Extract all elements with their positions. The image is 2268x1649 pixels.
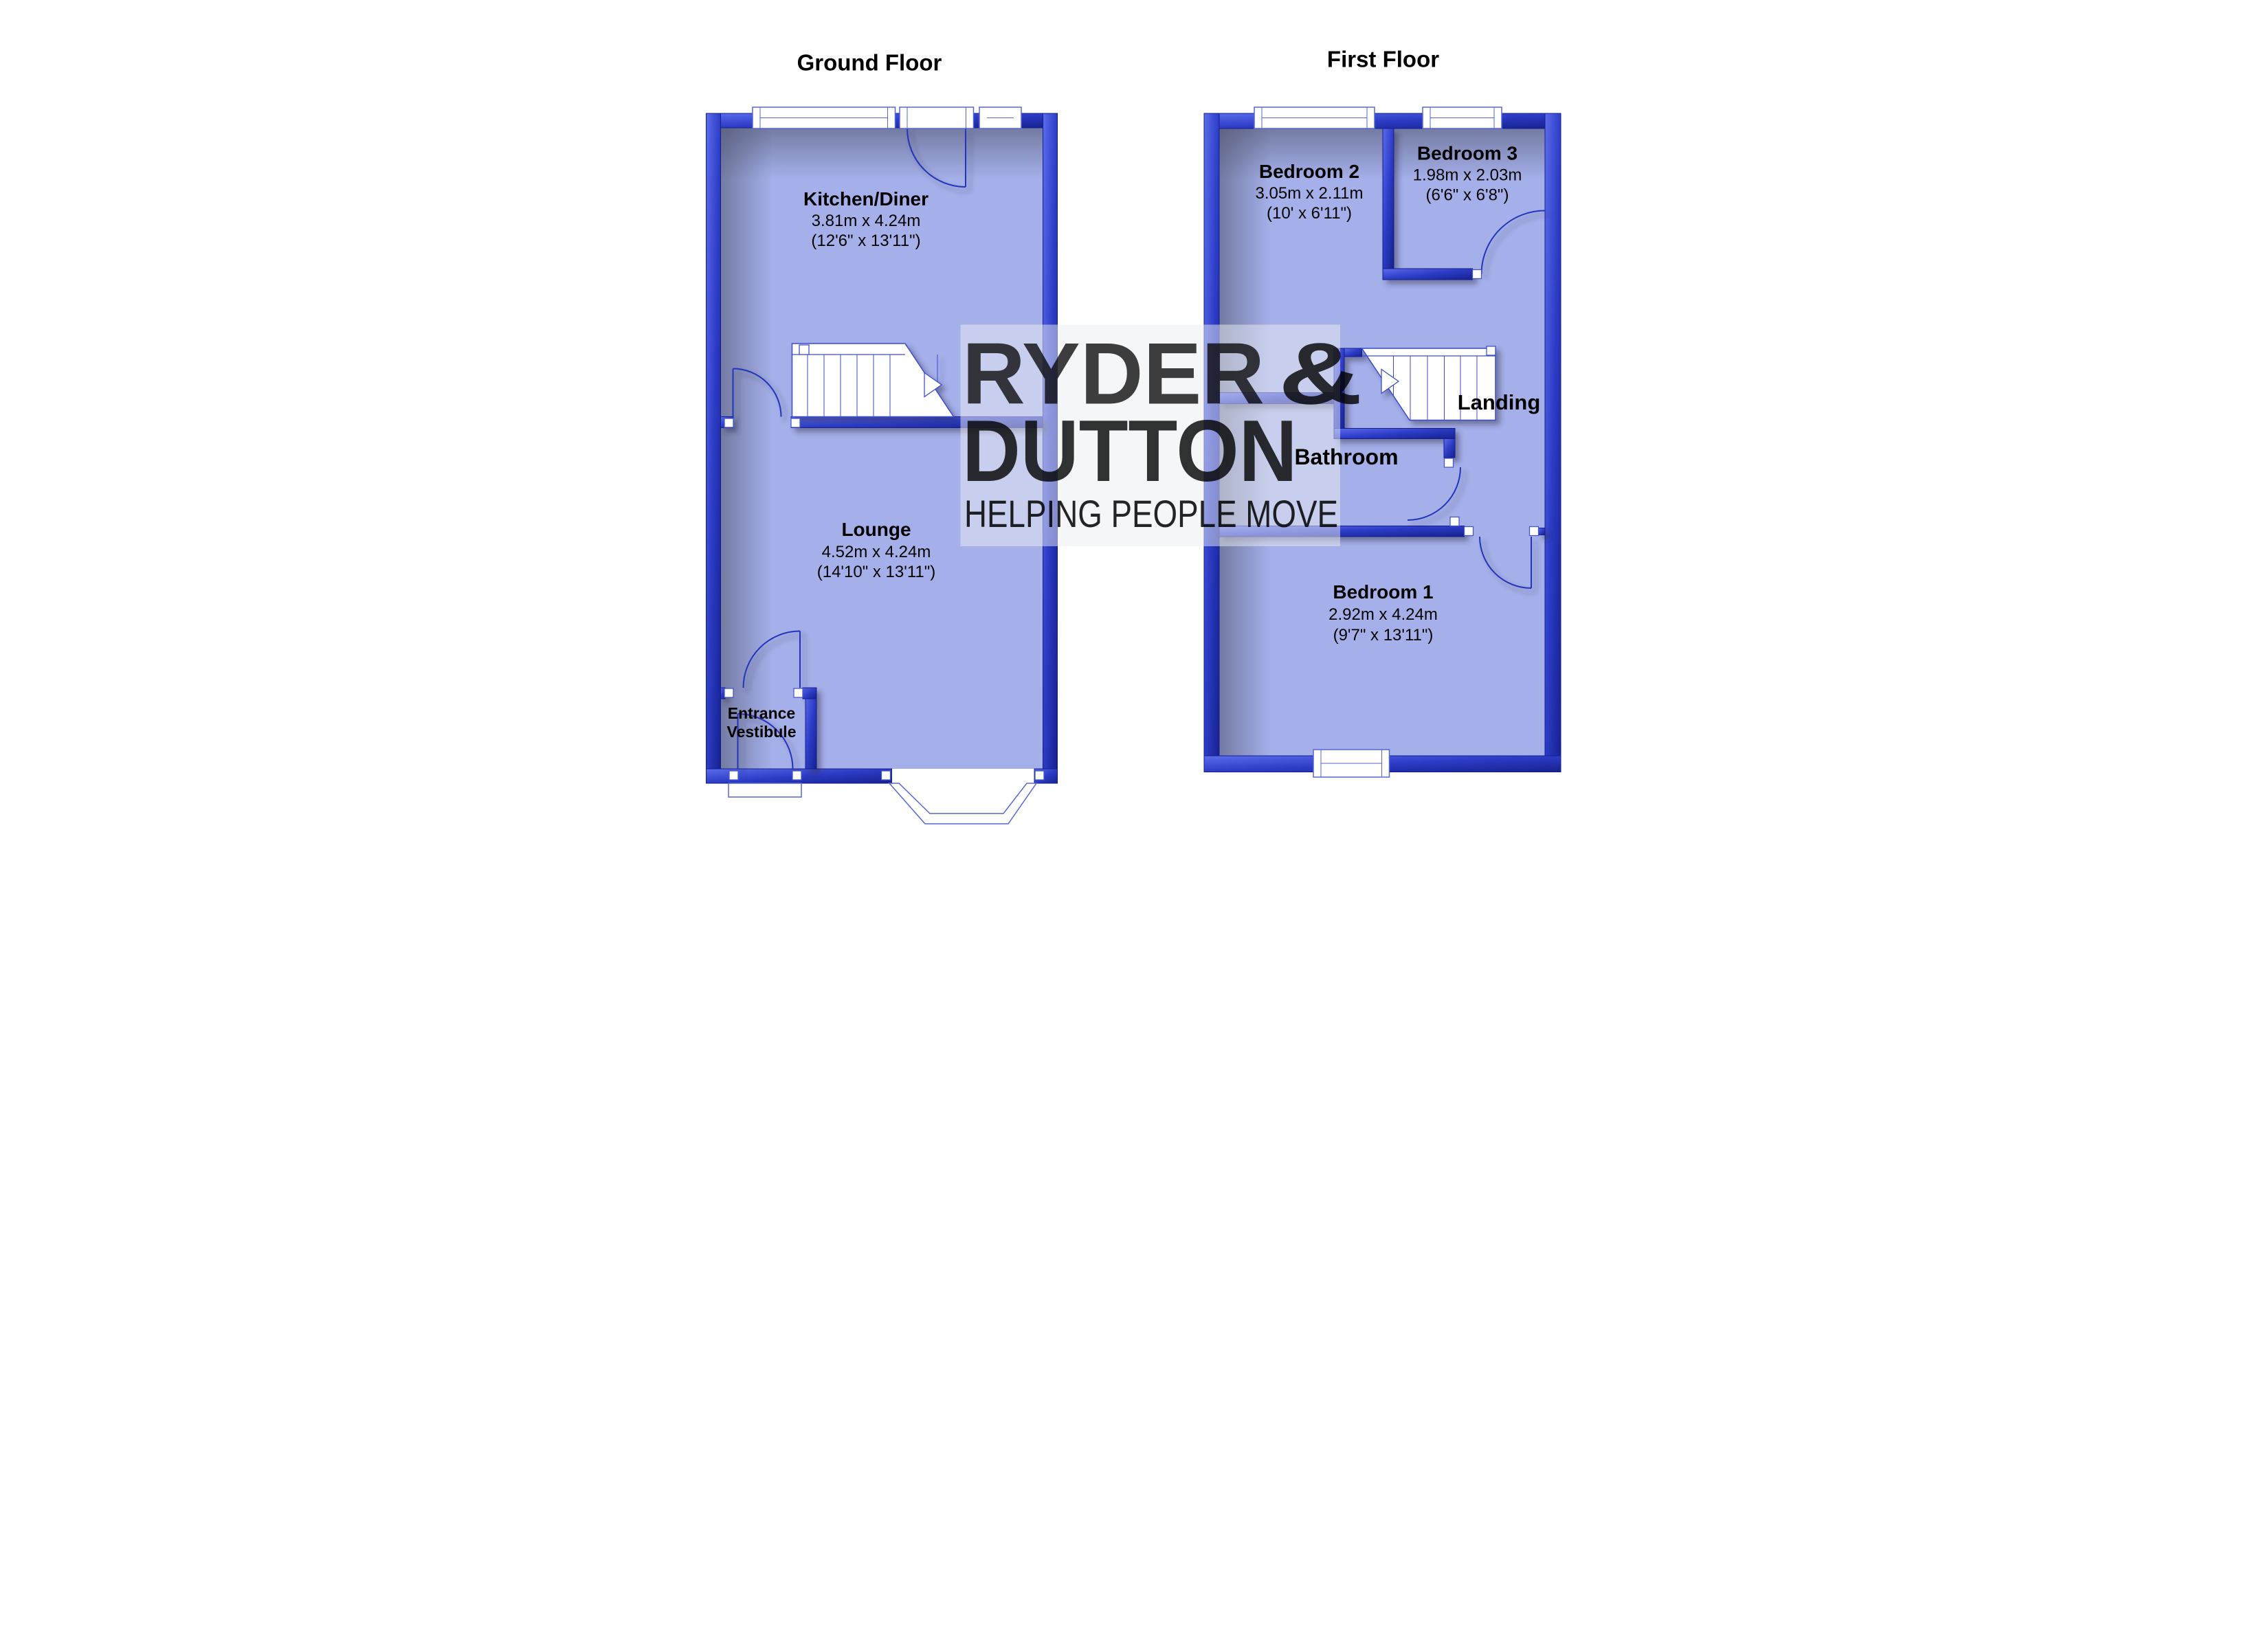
ground-shadow-left xyxy=(721,128,772,769)
watermark-tagline: HELPING PEOPLE MOVE xyxy=(964,492,1338,535)
wall-cap xyxy=(1473,270,1482,279)
wall-cap xyxy=(729,771,738,780)
wall xyxy=(707,113,721,783)
floorplan-canvas: RYDER & DUTTON HELPING PEOPLE MOVE Groun… xyxy=(567,0,1701,824)
bedroom2-imperial: (10' x 6'11") xyxy=(1267,204,1352,223)
vestibule-label-line1: Entrance xyxy=(728,704,795,722)
floorplan-page: RYDER & DUTTON HELPING PEOPLE MOVE Groun… xyxy=(567,0,1701,824)
bedroom1-metric: 2.92m x 4.24m xyxy=(1328,605,1438,624)
wall xyxy=(803,688,816,699)
kitchen-diner-imperial: (12'6" x 13'11") xyxy=(811,232,920,250)
front-door-threshold xyxy=(729,783,801,797)
lounge-metric: 4.52m x 4.24m xyxy=(822,543,931,561)
bedroom2-label: Bedroom 2 xyxy=(1259,161,1359,182)
wall-cap xyxy=(724,418,733,427)
first-floor-title: First Floor xyxy=(1327,47,1439,72)
wall-bathroom-jamb xyxy=(1444,439,1455,458)
kitchen-diner-metric: 3.81m x 4.24m xyxy=(812,212,921,230)
lounge-label: Lounge xyxy=(841,519,911,540)
bathroom-label: Bathroom xyxy=(1294,445,1398,469)
vestibule-label-line2: Vestibule xyxy=(727,723,797,741)
wall-vestibule xyxy=(805,688,816,769)
kitchen-diner-label: Kitchen/Diner xyxy=(803,188,929,210)
stairs-newel xyxy=(799,345,809,355)
wall xyxy=(1545,113,1561,772)
bedroom3-metric: 1.98m x 2.03m xyxy=(1413,166,1522,185)
wall-cap xyxy=(1445,458,1454,467)
wall-stairwell-bottom xyxy=(1334,429,1455,439)
wall-cap xyxy=(1035,771,1044,780)
wall-cap xyxy=(1530,527,1539,536)
landing-label: Landing xyxy=(1458,390,1541,414)
wall-cap xyxy=(724,688,733,697)
stairs-newel xyxy=(1487,346,1496,355)
bedroom3-imperial: (6'6" x 6'8") xyxy=(1426,186,1509,205)
wall-cap xyxy=(794,688,803,697)
lounge-imperial: (14'10" x 13'11") xyxy=(817,563,936,581)
ground-floor-title: Ground Floor xyxy=(797,50,942,76)
glazed-door-kitchen xyxy=(900,107,974,128)
bay-window xyxy=(889,783,1036,824)
wall-cap xyxy=(791,418,800,427)
wall-cap xyxy=(882,771,891,780)
wall-stub xyxy=(1539,528,1546,535)
wall-cap xyxy=(1465,527,1474,536)
watermark: RYDER & DUTTON HELPING PEOPLE MOVE xyxy=(961,325,1363,547)
watermark-brand-bottom: DUTTON xyxy=(962,403,1298,500)
wall-bedroom3-bottom xyxy=(1383,269,1473,280)
wall-cap xyxy=(792,771,801,780)
wall-cap xyxy=(1450,517,1459,526)
wall-bedroom-divider xyxy=(1383,128,1394,269)
bedroom1-label: Bedroom 1 xyxy=(1333,581,1433,603)
bedroom2-metric: 3.05m x 2.11m xyxy=(1256,184,1364,203)
bedroom3-label: Bedroom 3 xyxy=(1417,143,1517,164)
bedroom1-imperial: (9'7" x 13'11") xyxy=(1333,626,1434,644)
